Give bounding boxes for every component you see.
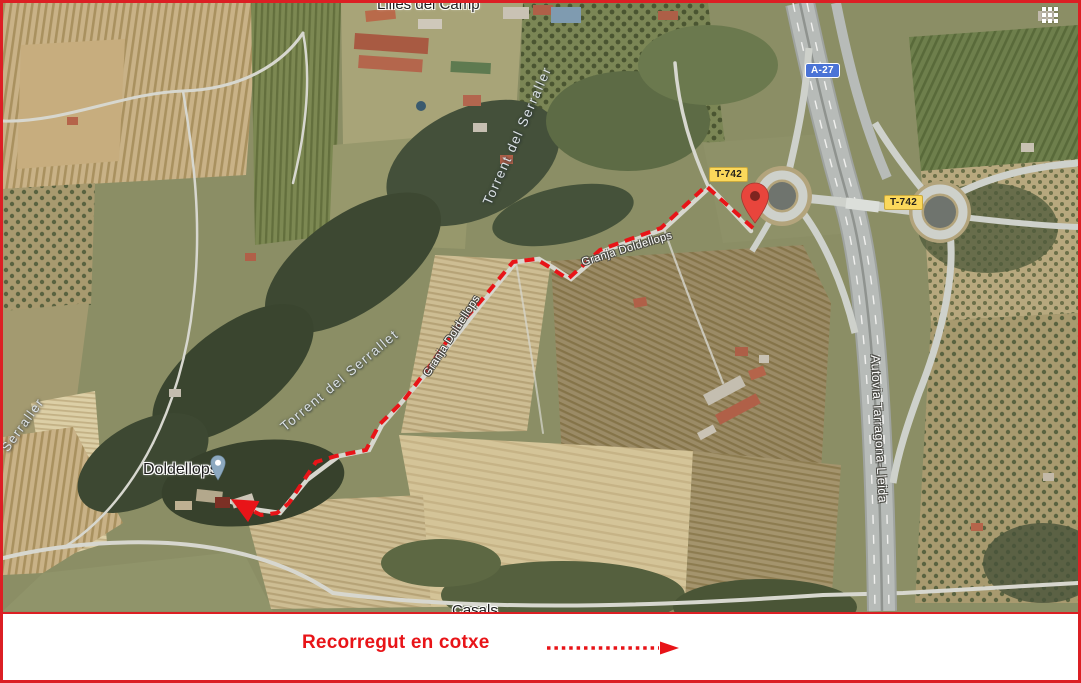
road-badge-a27: A-27 [805,63,840,78]
red-location-marker-icon[interactable] [740,182,770,224]
legend-route-arrow-icon [545,638,685,658]
road-badge-t742-east: T-742 [884,195,923,210]
terrain-fields [3,3,1078,612]
doldellops-place-pin-icon[interactable] [210,455,226,481]
road-badge-t742-west: T-742 [709,167,748,182]
map-document: Lilles del Camp Torrent del Serraller To… [0,0,1081,683]
map-legend: Recorregut en cotxe [3,614,1078,680]
apps-grid-icon[interactable] [1041,6,1060,25]
satellite-imagery [3,3,1078,612]
legend-route-label: Recorregut en cotxe [302,632,490,654]
satellite-map[interactable]: Lilles del Camp Torrent del Serraller To… [3,3,1078,612]
